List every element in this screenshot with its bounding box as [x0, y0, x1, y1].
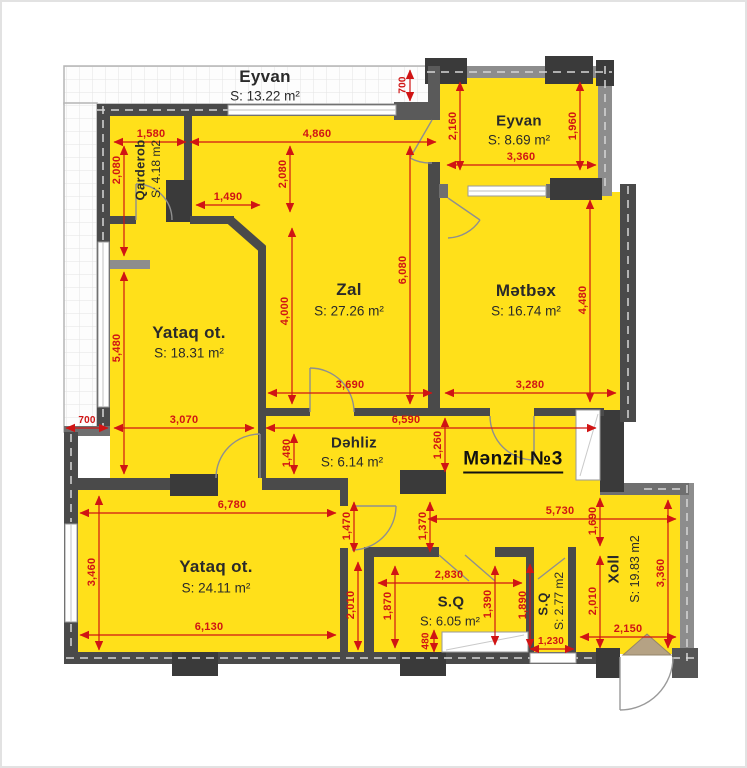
dim-label: 3,280	[516, 379, 545, 391]
room-area-metbex: S: 16.74 m²	[491, 304, 561, 319]
dim-label: 1,230	[538, 636, 564, 647]
room-label-sq2: S.Q	[536, 592, 551, 615]
room-label-metbex: Mətbəx	[496, 281, 556, 301]
dim-label: 1,470	[341, 512, 353, 541]
room-label-qarderob: Qarderob	[133, 140, 148, 201]
room-label-xoll: Xoll	[606, 555, 623, 584]
room-area-dahliz: S: 6.14 m²	[321, 455, 383, 470]
dim-label: 3,360	[507, 151, 536, 163]
room-area-yataq2: S: 24.11 m²	[182, 581, 251, 596]
dim-label: 2,010	[345, 591, 357, 620]
room-area-sq1: S: 6.05 m²	[420, 614, 480, 629]
dim-label: 3,460	[86, 558, 98, 587]
dim-label: 1,260	[432, 431, 444, 460]
dim-label: 2,010	[587, 587, 599, 616]
dim-label: 3,690	[336, 379, 365, 391]
dim-label: 1,480	[281, 439, 293, 468]
dim-label: 480	[421, 632, 432, 649]
dim-label: 6,080	[397, 256, 409, 285]
room-area-yataq1: S: 18.31 m²	[154, 346, 224, 361]
dim-label: 2,150	[614, 623, 643, 635]
room-area-eyvan1: S: 13.22 m²	[230, 89, 300, 104]
room-label-eyvan2: Eyvan	[496, 113, 542, 130]
room-label-yataq1: Yataq ot.	[152, 323, 226, 343]
dim-label: 4,480	[577, 286, 589, 315]
room-label-zal: Zal	[336, 280, 361, 300]
room-label-sq1: S.Q	[438, 594, 465, 611]
dim-label: 1,390	[482, 590, 494, 619]
dim-label: 1,490	[214, 191, 243, 203]
floor-plan-geometry	[2, 2, 747, 768]
room-area-xoll: S: 19.83 m2	[628, 535, 642, 602]
dim-label: 3,360	[655, 559, 667, 588]
dim-label: 2,080	[111, 156, 123, 185]
dim-label: 5,730	[546, 505, 575, 517]
room-area-sq2: S: 2.77 m2	[552, 572, 566, 630]
dim-label: 2,080	[277, 160, 289, 189]
dim-label: 700	[398, 76, 409, 93]
dim-label: 700	[78, 415, 95, 426]
dim-label: 1,960	[567, 112, 579, 141]
dim-label: 1,580	[137, 128, 166, 140]
room-area-eyvan2: S: 8.69 m²	[488, 133, 550, 148]
room-label-eyvan1: Eyvan	[239, 67, 291, 87]
room-label-yataq2: Yataq ot.	[179, 557, 253, 577]
room-area-qarderob: S: 4.18 m2	[149, 140, 163, 198]
entrance-door	[620, 657, 673, 710]
dim-label: 6,780	[218, 499, 247, 511]
room-area-eyvan2	[440, 70, 608, 192]
room-label-dahliz: Dəhliz	[331, 435, 377, 452]
dim-label: 6,130	[195, 621, 224, 633]
dim-label: 1,690	[587, 507, 599, 536]
dim-label: 6,590	[392, 414, 421, 426]
unit-number-label: Mənzil №3	[463, 449, 563, 474]
dim-label: 3,070	[170, 414, 199, 426]
dim-label: 1,890	[517, 591, 529, 620]
dim-label: 1,370	[417, 512, 429, 541]
dim-label: 4,000	[279, 297, 291, 326]
dim-label: 2,830	[435, 569, 464, 581]
dim-label: 1,870	[382, 592, 394, 621]
dim-label: 2,160	[447, 112, 459, 141]
dim-label: 4,860	[303, 128, 332, 140]
room-area-zal: S: 27.26 m²	[314, 304, 384, 319]
floor-plan: Eyvan S: 13.22 m² Eyvan S: 8.69 m² Qarde…	[0, 0, 747, 768]
dim-label: 5,480	[111, 334, 123, 363]
